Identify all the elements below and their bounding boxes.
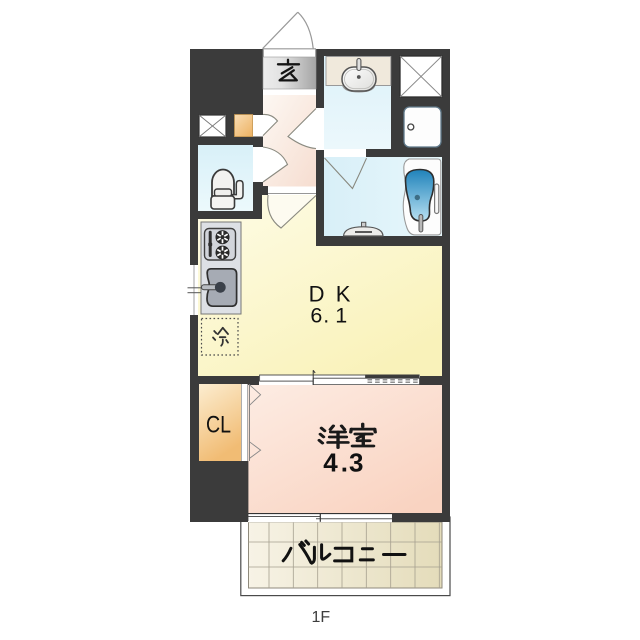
svg-text:3: 3 [349, 448, 363, 478]
svg-text:6: 6 [310, 304, 322, 328]
svg-text:1: 1 [335, 304, 347, 328]
svg-text:1F: 1F [312, 609, 331, 626]
svg-text:.: . [323, 304, 329, 328]
svg-text:4: 4 [323, 448, 338, 478]
svg-text:.: . [341, 448, 348, 478]
svg-text:CL: CL [206, 410, 231, 438]
